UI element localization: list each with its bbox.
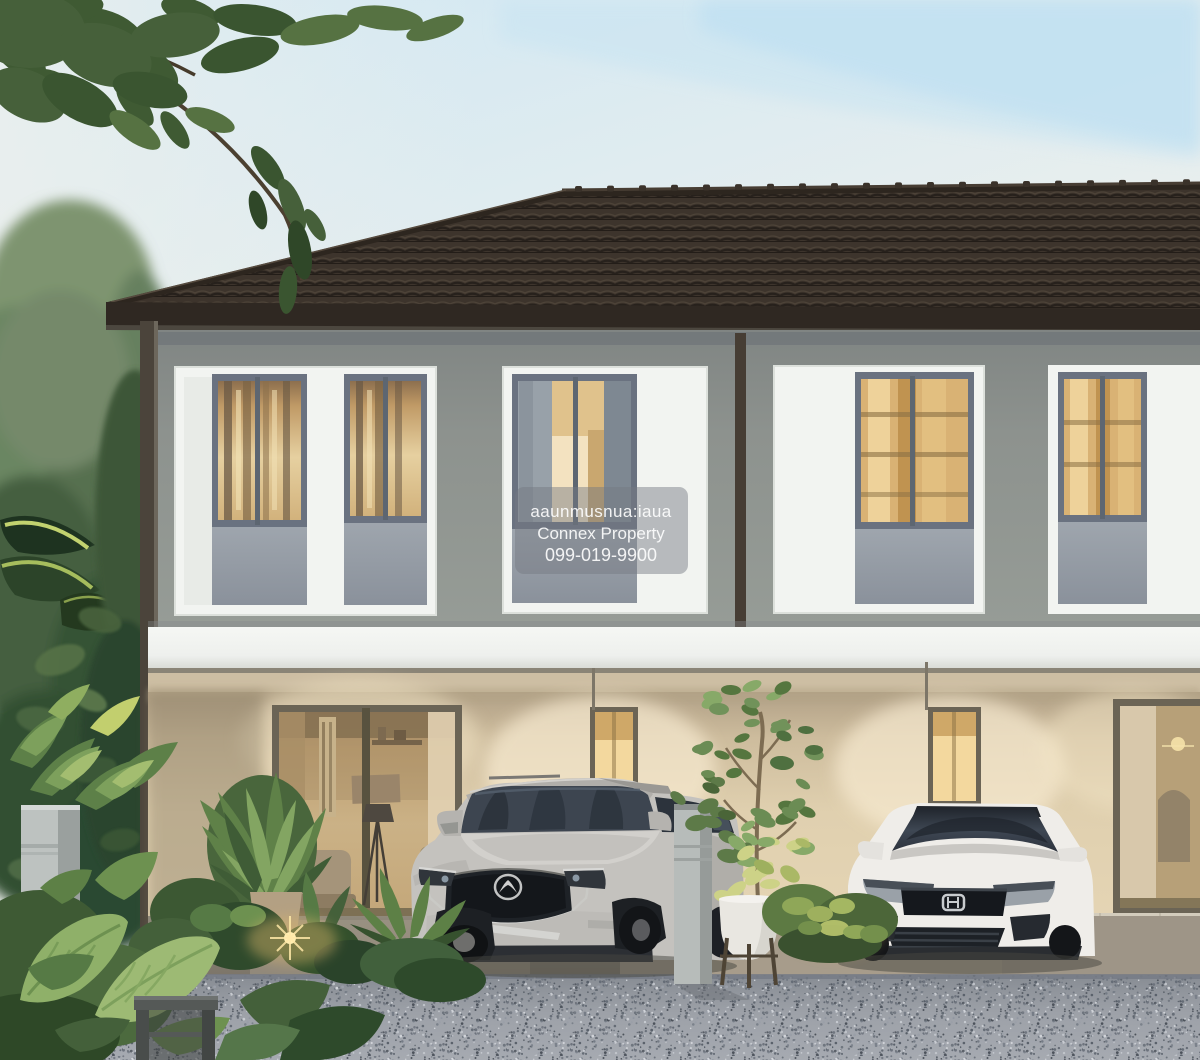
svg-text:Connex Property: Connex Property xyxy=(537,524,665,543)
svg-text:aaunmusnua:iaua: aaunmusnua:iaua xyxy=(530,502,671,521)
svg-text:099-019-9900: 099-019-9900 xyxy=(545,545,657,565)
